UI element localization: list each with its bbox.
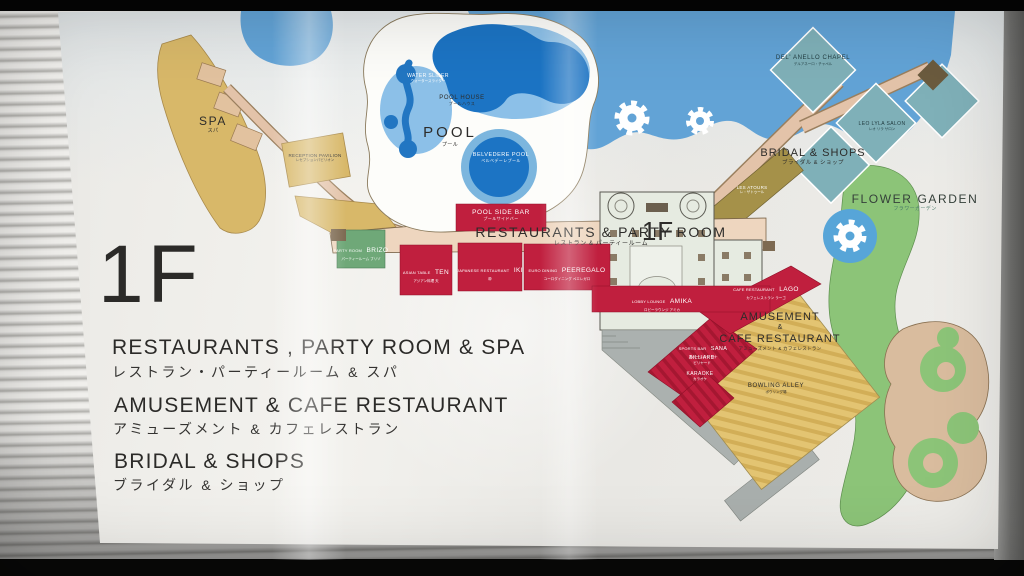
ten-label-en: ASIAN TABLE TEN bbox=[403, 260, 449, 279]
amusement-jp: アミューズメント & カフェレストラン bbox=[719, 346, 840, 351]
ten-pre: ASIAN TABLE bbox=[403, 270, 431, 275]
map-label-water-slider: WATER SLIDER ウォータースライダー bbox=[407, 73, 449, 83]
map-label-pool-house: POOL HOUSE プールハウス bbox=[439, 95, 484, 107]
brizo-name: BRIZO bbox=[367, 247, 389, 254]
peeregalo-label-jp: ユーロダイニング ペエレガロ bbox=[528, 277, 605, 281]
restaurants-band-label-jp: レストラン & パーティールーム bbox=[475, 241, 726, 248]
legend-entry-1-jp: レストラン・パーティールーム & スパ bbox=[112, 362, 399, 382]
leo-salon-label-jp: レオ リラ サロン bbox=[859, 127, 906, 131]
chapel-label-jp: デルアネーロ・チャペル bbox=[776, 62, 850, 66]
karaoke-label-jp: カラオケ bbox=[687, 377, 714, 381]
iki-pre: JAPANESE RESTAURANT bbox=[457, 268, 509, 273]
brizo-label-jp: パーティールーム ブリゾ bbox=[334, 257, 389, 261]
amusement-amp: & bbox=[719, 324, 840, 332]
map-label-pool: POOL プール bbox=[423, 124, 477, 148]
sana-label-en: SPORTS BAR SANA bbox=[679, 336, 728, 355]
map-label-brizo: PARTY ROOM BRIZO パーティールーム ブリゾ bbox=[334, 238, 389, 261]
brizo-pre: PARTY ROOM bbox=[334, 248, 362, 253]
flower-garden-label-en: FLOWER GARDEN bbox=[852, 192, 979, 206]
restaurants-band-label-en: RESTAURANTS & PARTY ROOM bbox=[475, 224, 726, 241]
amika-label-jp: ロビーラウンジ アミカ bbox=[632, 308, 692, 312]
map-label-amusement: AMUSEMENT & CAFE RESTAURANT アミューズメント & カ… bbox=[719, 311, 840, 351]
billiard-label-jp: ビリヤード bbox=[689, 361, 714, 365]
legend-entry-1-en: RESTAURANTS , PARTY ROOM & SPA bbox=[112, 336, 525, 360]
photo-of-floor-map-sign: SPA スパ RECEPTION PAVILION レセプションパビリオン WA… bbox=[0, 0, 1024, 576]
pool-side-bar-label-jp: プールサイドバー bbox=[472, 217, 530, 222]
les-atours-label-jp: レ・ザトゥール bbox=[737, 190, 768, 194]
lago-name: LAGO bbox=[779, 286, 799, 293]
amika-name: AMIKA bbox=[670, 298, 692, 305]
map-label-chapel: DEL' ANELLO CHAPEL デルアネーロ・チャペル bbox=[776, 55, 850, 66]
photo-top-black-band bbox=[0, 0, 1024, 11]
map-label-bridal-shops: BRIDAL & SHOPS ブライダル & ショップ bbox=[760, 147, 865, 167]
map-label-spa: SPA スパ bbox=[199, 114, 227, 134]
map-label-peeregalo: EURO DINING PEEREGALO ユーロダイニング ペエレガロ bbox=[528, 258, 605, 281]
lago-pre: CAFE RESTAURANT bbox=[733, 287, 775, 292]
legend-floor: 1F bbox=[98, 228, 202, 322]
sana-name: SANA bbox=[711, 346, 728, 352]
amika-label-en: LOBBY LOUNGE AMIKA bbox=[632, 289, 692, 308]
lago-label-en: CAFE RESTAURANT LAGO bbox=[733, 277, 799, 296]
amusement-line2: CAFE RESTAURANT bbox=[719, 333, 840, 346]
spa-label-en: SPA bbox=[199, 114, 227, 128]
bridal-shops-label-jp: ブライダル & ショップ bbox=[760, 160, 865, 167]
map-label-amika: LOBBY LOUNGE AMIKA ロビーラウンジ アミカ bbox=[632, 289, 692, 312]
iki-label-jp: 粋 bbox=[457, 277, 523, 281]
map-label-belvedere-pool: BELVEDERE POOL ベルベデーレプール bbox=[473, 152, 529, 163]
building-floor-text: 1F bbox=[642, 216, 674, 247]
pool-house-label-jp: プールハウス bbox=[439, 102, 484, 107]
map-label-reception: RECEPTION PAVILION レセプションパビリオン bbox=[289, 153, 342, 163]
lago-label-jp: カフェレストラン ラーゴ bbox=[733, 296, 799, 300]
sana-pre: SPORTS BAR bbox=[679, 346, 707, 351]
belvedere-label-jp: ベルベデーレプール bbox=[473, 159, 529, 164]
flower-garden-label-jp: フラワーガーデン bbox=[852, 206, 979, 212]
photo-bottom-black-band bbox=[0, 560, 1024, 576]
map-label-iki: JAPANESE RESTAURANT IKI 粋 bbox=[457, 258, 523, 281]
bridal-shops-label-en: BRIDAL & SHOPS bbox=[760, 147, 865, 160]
iki-name: IKI bbox=[514, 267, 523, 274]
brizo-label-en: PARTY ROOM BRIZO bbox=[334, 238, 389, 257]
amika-pre: LOBBY LOUNGE bbox=[632, 299, 666, 304]
map-label-flower-garden: FLOWER GARDEN フラワーガーデン bbox=[852, 192, 979, 212]
map-label-lago: CAFE RESTAURANT LAGO カフェレストラン ラーゴ bbox=[733, 277, 799, 300]
iki-label-en: JAPANESE RESTAURANT IKI bbox=[457, 258, 523, 277]
building-floor-badge: 1F bbox=[642, 216, 674, 247]
legend-entry-3-en: BRIDAL & SHOPS bbox=[114, 450, 305, 474]
peeregalo-pre: EURO DINING bbox=[528, 268, 557, 273]
peeregalo-name: PEEREGALO bbox=[562, 267, 606, 274]
map-label-karaoke: KARAOKE カラオケ bbox=[687, 371, 714, 381]
legend-entry-2-jp: アミューズメント & カフェレストラン bbox=[113, 419, 401, 439]
map-label-les-atours: LES ATOURS レ・ザトゥール bbox=[737, 185, 768, 195]
ten-label-jp: アジアン料理 天 bbox=[403, 279, 449, 283]
pool-label-en: POOL bbox=[423, 124, 477, 142]
ten-name: TEN bbox=[435, 269, 449, 276]
map-label-restaurants-band: RESTAURANTS & PARTY ROOM レストラン & パーティールー… bbox=[475, 224, 726, 248]
spa-label-jp: スパ bbox=[199, 128, 227, 134]
legend-entry-3-jp: ブライダル & ショップ bbox=[113, 475, 286, 495]
legend-entry-2-en: AMUSEMENT & CAFE RESTAURANT bbox=[114, 394, 509, 418]
map-label-bowling: BOWLING ALLEY ボウリング場 bbox=[748, 383, 804, 394]
amusement-line1: AMUSEMENT bbox=[719, 311, 840, 324]
map-label-ten: ASIAN TABLE TEN アジアン料理 天 bbox=[403, 260, 449, 283]
water-slider-label-jp: ウォータースライダー bbox=[407, 79, 449, 83]
reception-label-jp: レセプションパビリオン bbox=[289, 158, 342, 162]
map-label-pool-side-bar: POOL SIDE BAR プールサイドバー bbox=[472, 209, 530, 222]
bowling-label-jp: ボウリング場 bbox=[748, 390, 804, 394]
peeregalo-label-en: EURO DINING PEEREGALO bbox=[528, 258, 605, 277]
pool-label-jp: プール bbox=[423, 142, 477, 148]
map-label-billiard: BILLIARD ビリヤード bbox=[689, 355, 714, 365]
map-label-leo-salon: LEO LYLA SALON レオ リラ サロン bbox=[859, 121, 906, 131]
